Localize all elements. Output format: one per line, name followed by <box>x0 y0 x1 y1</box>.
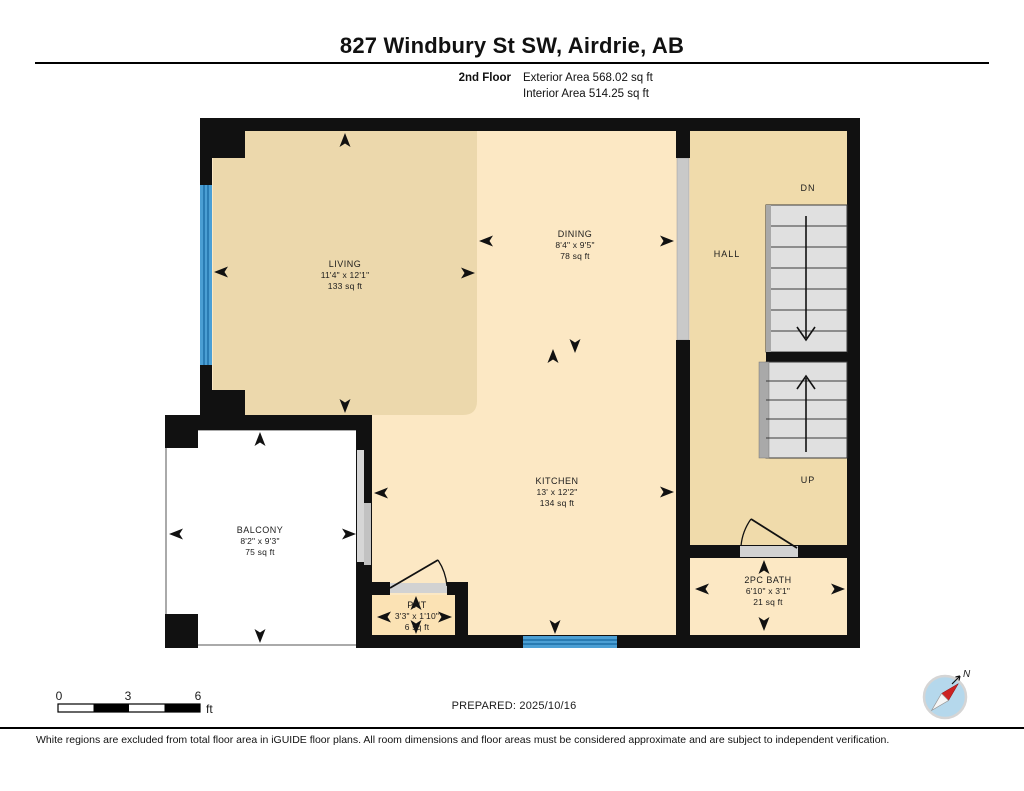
scale-bar: 0 3 6 ft <box>56 689 214 716</box>
svg-text:DINING: DINING <box>558 229 593 239</box>
scale-unit-label: ft <box>206 702 213 716</box>
svg-text:134 sq ft: 134 sq ft <box>540 498 575 508</box>
dining-label: DINING 8'4" x 9'5" 78 sq ft <box>555 229 594 261</box>
svg-text:LIVING: LIVING <box>329 259 362 269</box>
disclaimer-text: White regions are excluded from total fl… <box>36 734 996 746</box>
footer-divider <box>0 727 1024 729</box>
scale-tick-6: 6 <box>195 689 202 703</box>
floor-plan-page: 827 Windbury St SW, Airdrie, AB 2nd Floo… <box>0 0 1024 791</box>
svg-text:133 sq ft: 133 sq ft <box>328 281 363 291</box>
svg-text:11'4" x 12'1": 11'4" x 12'1" <box>321 270 370 280</box>
svg-text:21 sq ft: 21 sq ft <box>753 597 783 607</box>
svg-text:78 sq ft: 78 sq ft <box>560 251 590 261</box>
svg-text:8'4" x 9'5": 8'4" x 9'5" <box>555 240 594 250</box>
svg-text:KITCHEN: KITCHEN <box>535 476 578 486</box>
svg-text:6'10" x 3'1": 6'10" x 3'1" <box>746 586 790 596</box>
compass-icon: N <box>924 669 971 718</box>
window-kitchen <box>523 636 617 648</box>
svg-text:13' x 12'2": 13' x 12'2" <box>536 487 577 497</box>
hall-label: HALL <box>714 249 741 259</box>
stair-divider-wall <box>766 352 847 362</box>
svg-text:8'2" x 9'3": 8'2" x 9'3" <box>240 536 279 546</box>
svg-text:75 sq ft: 75 sq ft <box>245 547 275 557</box>
staircase-down <box>766 205 847 352</box>
prepared-date: PREPARED: 2025/10/16 <box>452 700 577 712</box>
scale-tick-3: 3 <box>125 689 132 703</box>
svg-text:BALCONY: BALCONY <box>237 525 284 535</box>
room-fills <box>166 124 854 645</box>
svg-text:PNT: PNT <box>407 600 427 610</box>
north-label: N <box>963 669 971 680</box>
window-left <box>200 185 212 365</box>
kitchen-label: KITCHEN 13' x 12'2" 134 sq ft <box>535 476 578 508</box>
stairs-down-label: DN <box>801 183 816 193</box>
svg-text:6 sq ft: 6 sq ft <box>405 622 430 632</box>
scale-tick-0: 0 <box>56 689 63 703</box>
floor-plan-drawing: LIVING 11'4" x 12'1" 133 sq ft DINING 8'… <box>0 0 1024 791</box>
svg-text:2PC BATH: 2PC BATH <box>744 575 791 585</box>
staircase-up <box>759 362 847 458</box>
svg-text:3'3" x 1'10": 3'3" x 1'10" <box>395 611 439 621</box>
stairs-up-label: UP <box>801 475 816 485</box>
stair-railing <box>677 158 689 340</box>
